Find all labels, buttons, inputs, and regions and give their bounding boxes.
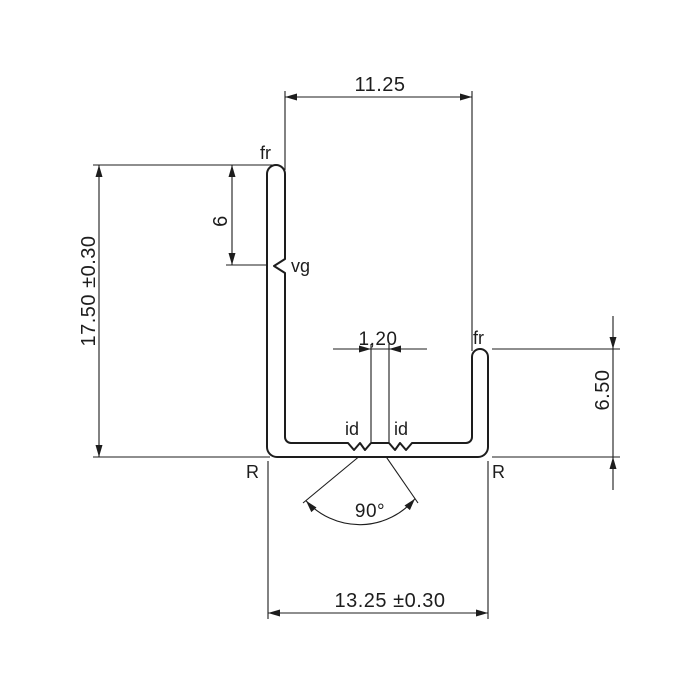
label-fr-right: fr (473, 328, 484, 348)
dim-overall-height: 17.50 ±0.30 (78, 165, 277, 457)
label-fr-left: fr (260, 143, 271, 163)
label-radius-left: R (246, 462, 259, 482)
arrowhead-icon (229, 165, 236, 177)
dim-label-vg-offset: 6 (210, 215, 232, 227)
dim-label-overall-height: 17.50 ±0.30 (78, 235, 100, 346)
drawing-canvas: 11.25 17.50 ±0.30 6 1,20 6.50 (0, 0, 700, 700)
arrowhead-icon (306, 501, 317, 512)
arrowhead-icon (229, 253, 236, 265)
arrowhead-icon (268, 610, 280, 617)
dim-label-right-flange-height: 6.50 (592, 370, 614, 411)
dim-vg-offset: 6 (210, 165, 273, 265)
dim-label-bottom-width: 13.25 ±0.30 (334, 590, 445, 612)
label-radius-right: R (492, 462, 505, 482)
arrowhead-icon (460, 94, 472, 101)
technical-drawing-svg: 11.25 17.50 ±0.30 6 1,20 6.50 (0, 0, 700, 700)
arrowhead-icon (610, 337, 617, 349)
dim-top-width: 11.25 (285, 74, 472, 351)
arrowhead-icon (285, 94, 297, 101)
dim-label-groove-gap: 1,20 (359, 329, 398, 350)
label-vg: vg (291, 256, 310, 276)
arrowhead-icon (476, 610, 488, 617)
dim-label-groove-angle: 90° (355, 501, 385, 522)
profile-outline (267, 165, 488, 457)
label-id-left: id (345, 419, 359, 439)
dim-right-flange-height: 6.50 (492, 316, 620, 490)
arrowhead-icon (610, 457, 617, 469)
dim-label-top-width: 11.25 (354, 74, 405, 96)
dim-bottom-width: 13.25 ±0.30 (268, 461, 488, 619)
label-id-right: id (394, 419, 408, 439)
arrowhead-icon (96, 165, 103, 177)
arrowhead-icon (96, 445, 103, 457)
